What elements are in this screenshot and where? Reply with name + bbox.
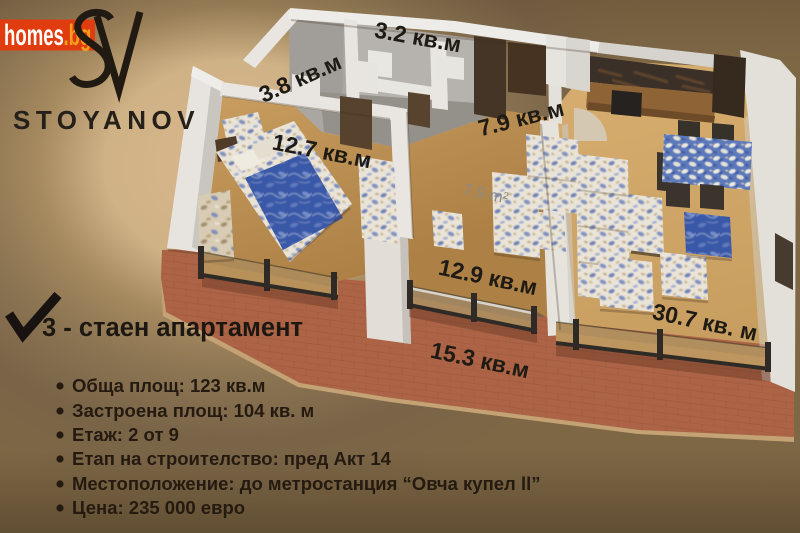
svg-text:Местоположение: до метростанци: Местоположение: до метростанция “Овча ку…: [72, 473, 540, 494]
svg-text:Цена: 235 000 евро: Цена: 235 000 евро: [72, 497, 245, 518]
svg-text:Етаж: 2 от 9: Етаж: 2 от 9: [72, 424, 179, 445]
svg-text:Обща площ: 123 кв.м: Обща площ: 123 кв.м: [72, 375, 265, 396]
svg-text:Застроена площ: 104 кв. м: Застроена площ: 104 кв. м: [72, 400, 314, 421]
svg-text:Етап на строителство: пред Акт: Етап на строителство: пред Акт 14: [72, 448, 392, 469]
svg-text:STOYANOV: STOYANOV: [13, 105, 200, 135]
svg-text:homes: homes: [4, 19, 64, 53]
svg-text:3 - стаен апартамент: 3 - стаен апартамент: [42, 314, 303, 342]
